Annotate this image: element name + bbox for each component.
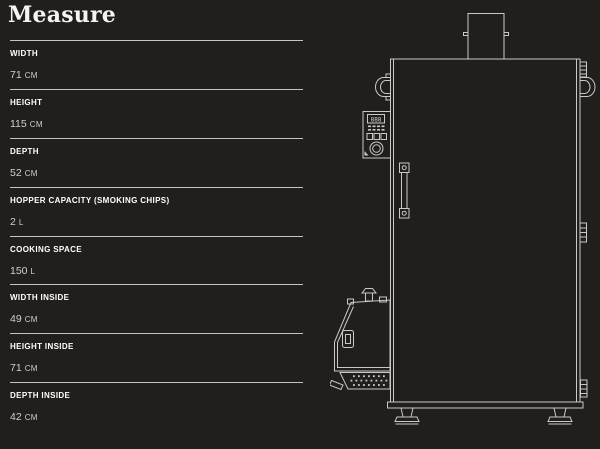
measure-number: 115 bbox=[10, 118, 27, 130]
measure-row: DEPTH 52CM bbox=[10, 138, 303, 187]
panel-button bbox=[381, 134, 387, 140]
measure-label: COOKING SPACE bbox=[10, 245, 303, 254]
panel-button bbox=[374, 134, 380, 140]
measure-unit: L bbox=[19, 218, 24, 227]
foot-right bbox=[548, 408, 572, 424]
hopper-cap bbox=[362, 289, 376, 294]
measure-unit: CM bbox=[25, 364, 38, 373]
measure-value: 115CM bbox=[10, 119, 303, 130]
measure-label: WIDTH INSIDE bbox=[10, 293, 303, 302]
measure-number: 42 bbox=[10, 411, 22, 423]
measure-number: 71 bbox=[10, 362, 22, 374]
panel-button bbox=[367, 134, 373, 140]
measure-value: 71CM bbox=[10, 363, 303, 374]
panel-knob bbox=[370, 142, 383, 155]
measure-value: 71CM bbox=[10, 70, 303, 81]
side-handle-right bbox=[580, 78, 595, 97]
hinge-bottom bbox=[581, 380, 588, 397]
measure-page: Measure WIDTH 71CM HEIGHT 115CM DEPTH 52… bbox=[0, 0, 600, 449]
hinge-top bbox=[580, 62, 587, 77]
measure-unit: CM bbox=[25, 413, 38, 422]
measure-label: HEIGHT bbox=[10, 98, 303, 107]
door-handle bbox=[400, 163, 410, 218]
panel-display-digits: 888 bbox=[371, 116, 382, 123]
measure-number: 2 bbox=[10, 216, 16, 228]
hopper-window bbox=[343, 331, 354, 348]
measure-value: 42CM bbox=[10, 412, 303, 423]
chimney bbox=[464, 14, 509, 60]
measure-row: WIDTH 71CM bbox=[10, 40, 303, 89]
measure-label: WIDTH bbox=[10, 49, 303, 58]
smoke-generator bbox=[330, 289, 390, 390]
measure-label: HOPPER CAPACITY (SMOKING CHIPS) bbox=[10, 196, 303, 205]
measure-number: 150 bbox=[10, 265, 28, 277]
measure-unit: CM bbox=[25, 169, 38, 178]
measure-unit: CM bbox=[25, 71, 38, 80]
measure-number: 71 bbox=[10, 69, 22, 81]
measure-row: COOKING SPACE 150L bbox=[10, 236, 303, 285]
measure-number: 52 bbox=[10, 167, 22, 179]
measure-value: 52CM bbox=[10, 168, 303, 179]
measure-row: DEPTH INSIDE 42CM bbox=[10, 382, 303, 431]
panel-labels bbox=[368, 126, 385, 131]
measure-label: DEPTH bbox=[10, 147, 303, 156]
measure-row: HOPPER CAPACITY (SMOKING CHIPS) 2L bbox=[10, 187, 303, 236]
measure-row: HEIGHT INSIDE 71CM bbox=[10, 333, 303, 382]
measurements-list: WIDTH 71CM HEIGHT 115CM DEPTH 52CM HOPPE… bbox=[10, 40, 303, 431]
page-title: Measure bbox=[8, 2, 116, 28]
measure-value: 150L bbox=[10, 266, 303, 277]
measure-row: HEIGHT 115CM bbox=[10, 89, 303, 138]
measure-unit: CM bbox=[25, 315, 38, 324]
measure-unit: L bbox=[31, 267, 36, 276]
control-panel: 888 bbox=[363, 112, 391, 159]
tray-perforations bbox=[351, 375, 388, 386]
measure-number: 49 bbox=[10, 313, 22, 325]
smoker-diagram: 888 bbox=[330, 0, 600, 449]
side-handle-left bbox=[376, 74, 391, 100]
measure-value: 2L bbox=[10, 217, 303, 228]
pellet-tray bbox=[340, 373, 390, 390]
tray-handle bbox=[330, 381, 343, 390]
foot-left bbox=[395, 408, 419, 424]
measure-unit: CM bbox=[30, 120, 43, 129]
measure-label: DEPTH INSIDE bbox=[10, 391, 303, 400]
cabinet-body bbox=[388, 59, 584, 408]
measure-label: HEIGHT INSIDE bbox=[10, 342, 303, 351]
hinge-middle bbox=[580, 223, 587, 242]
measure-row: WIDTH INSIDE 49CM bbox=[10, 284, 303, 333]
measure-value: 49CM bbox=[10, 314, 303, 325]
